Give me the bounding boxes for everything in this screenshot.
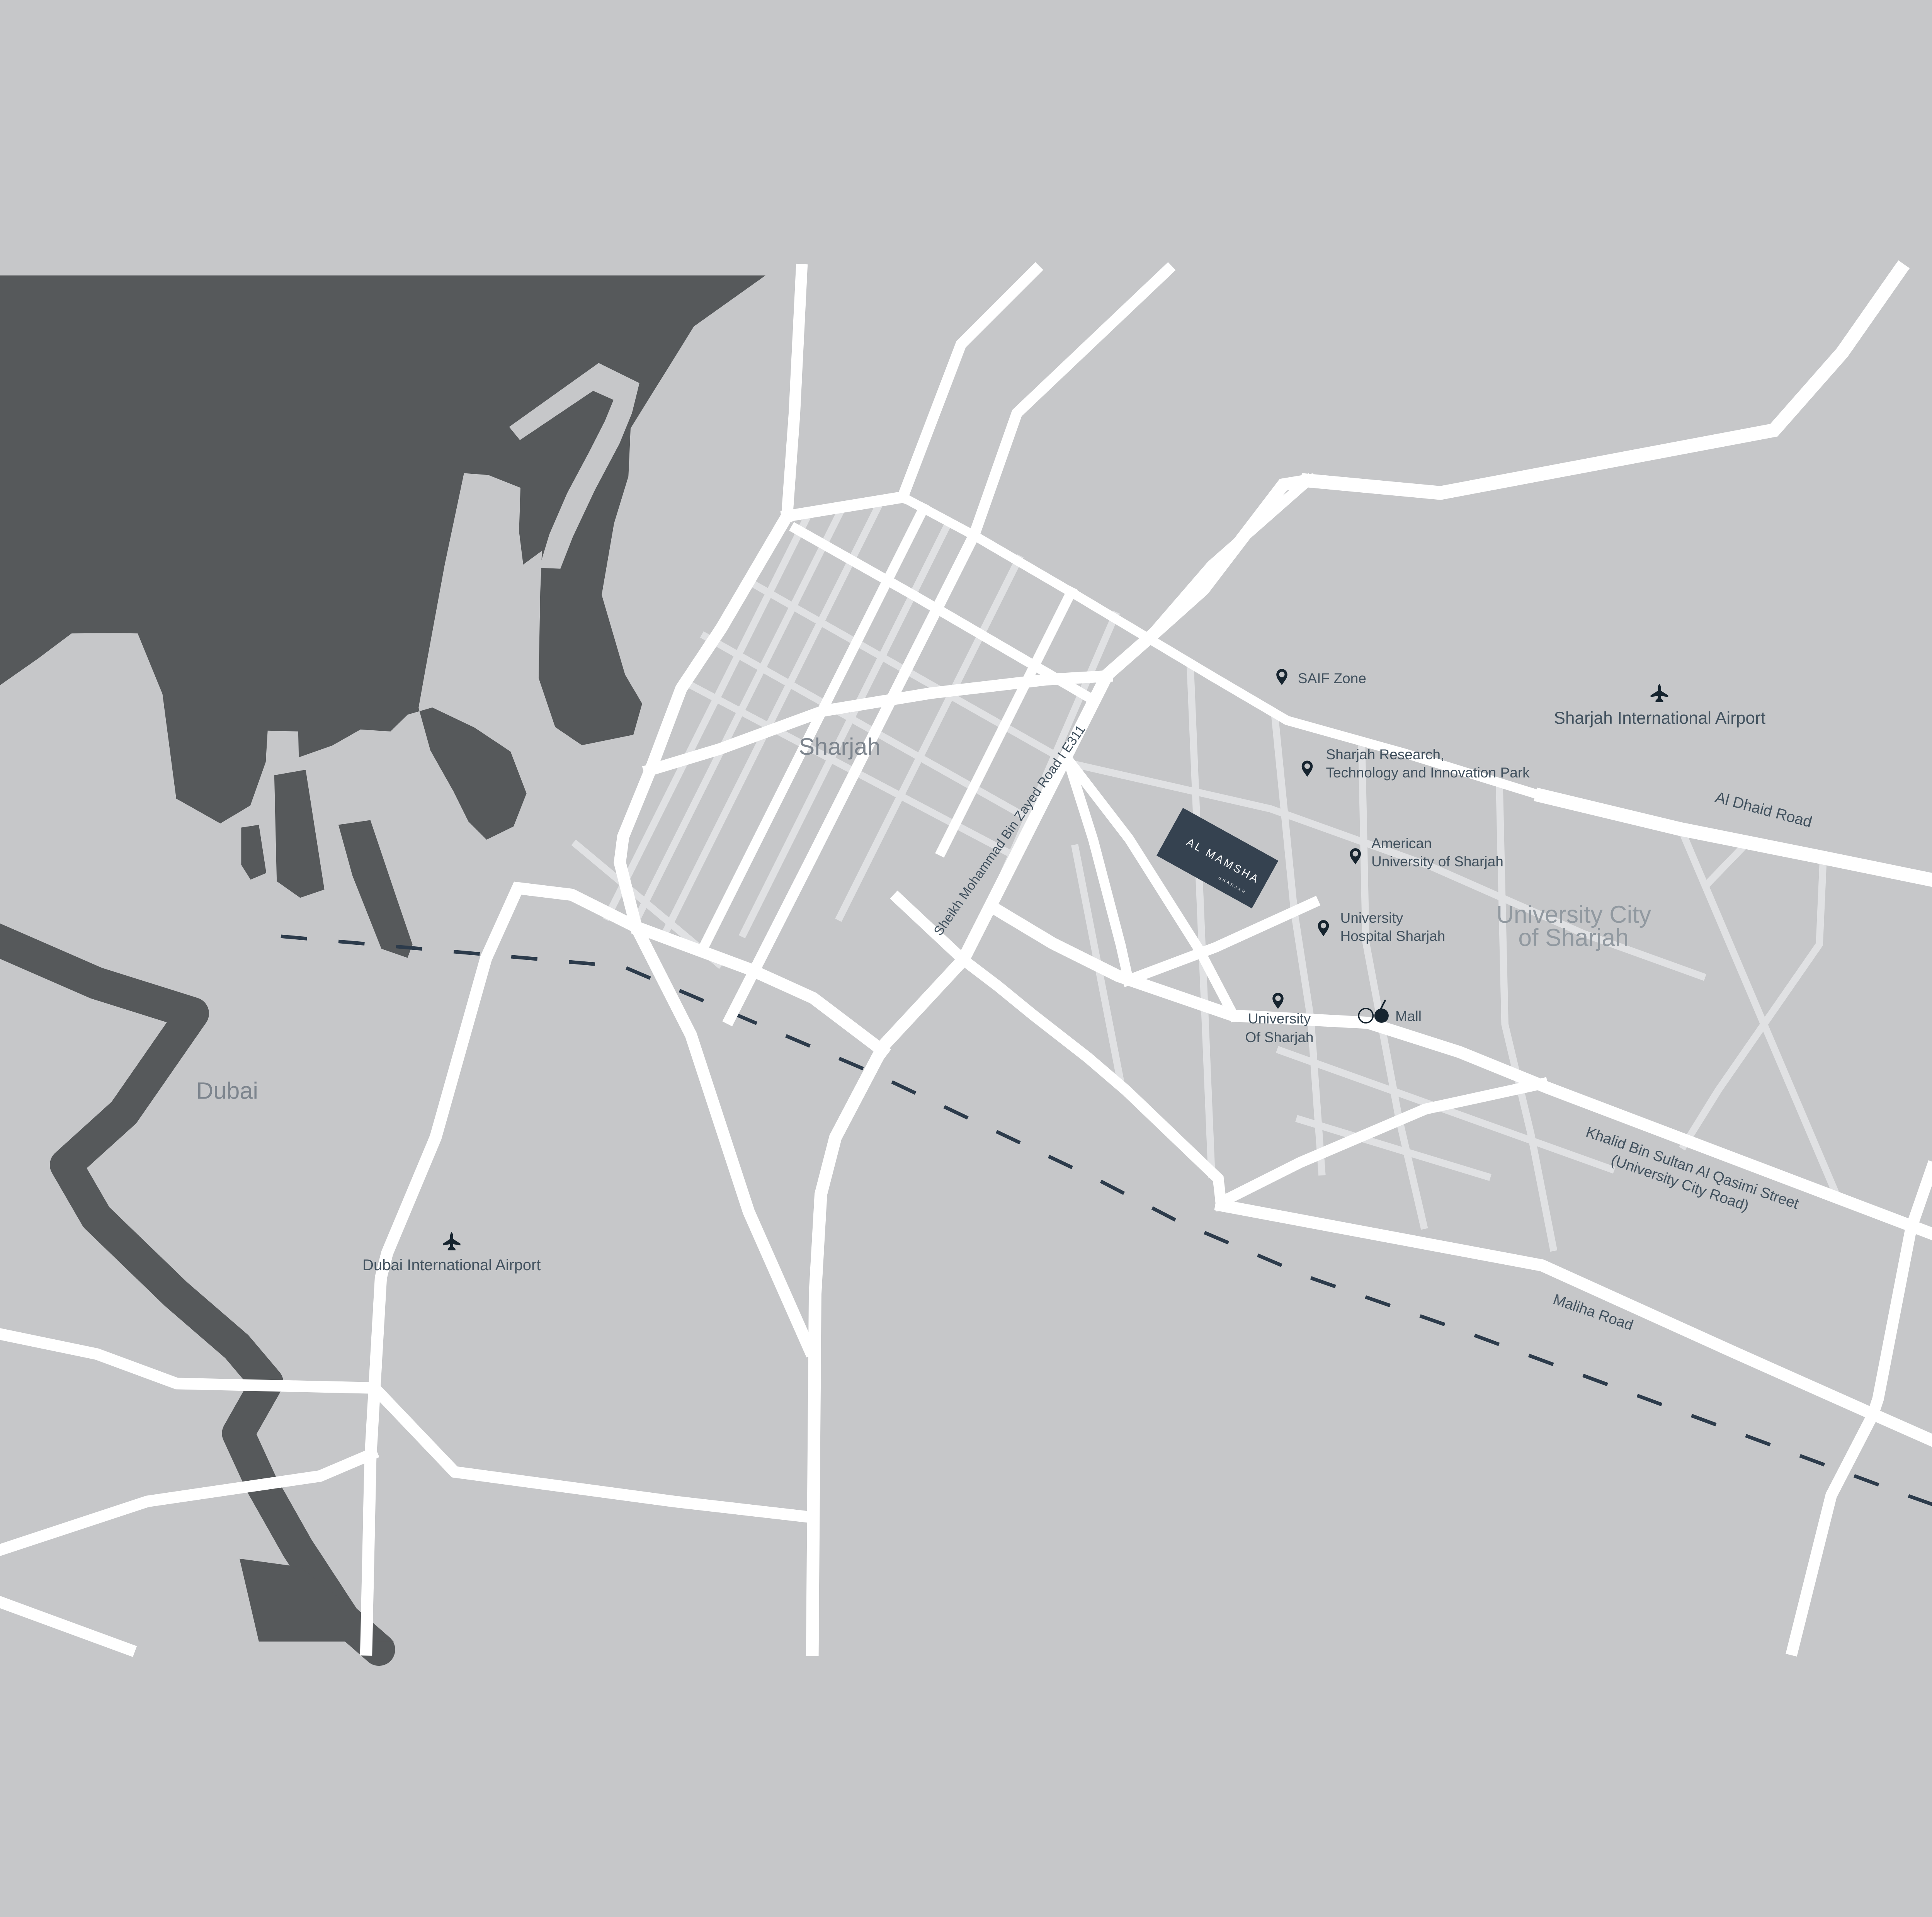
svg-text:Sharjah: Sharjah: [799, 733, 880, 760]
svg-text:Sharjah Research,: Sharjah Research,: [1326, 746, 1444, 762]
svg-text:Dubai: Dubai: [196, 1078, 258, 1104]
svg-text:Hospital Sharjah: Hospital Sharjah: [1340, 928, 1446, 944]
svg-text:Mall: Mall: [1395, 1008, 1422, 1024]
svg-text:SAIF Zone: SAIF Zone: [1298, 670, 1366, 686]
svg-text:University: University: [1340, 910, 1403, 926]
svg-text:University of Sharjah: University of Sharjah: [1371, 853, 1503, 869]
svg-text:Sharjah International Airport: Sharjah International Airport: [1554, 709, 1765, 728]
svg-text:of Sharjah: of Sharjah: [1518, 924, 1629, 951]
svg-text:Technology and Innovation Park: Technology and Innovation Park: [1326, 764, 1530, 781]
svg-text:American: American: [1371, 835, 1432, 851]
svg-text:University: University: [1248, 1010, 1311, 1026]
svg-text:Of Sharjah: Of Sharjah: [1245, 1029, 1313, 1045]
svg-text:Dubai International Airport: Dubai International Airport: [362, 1257, 541, 1274]
